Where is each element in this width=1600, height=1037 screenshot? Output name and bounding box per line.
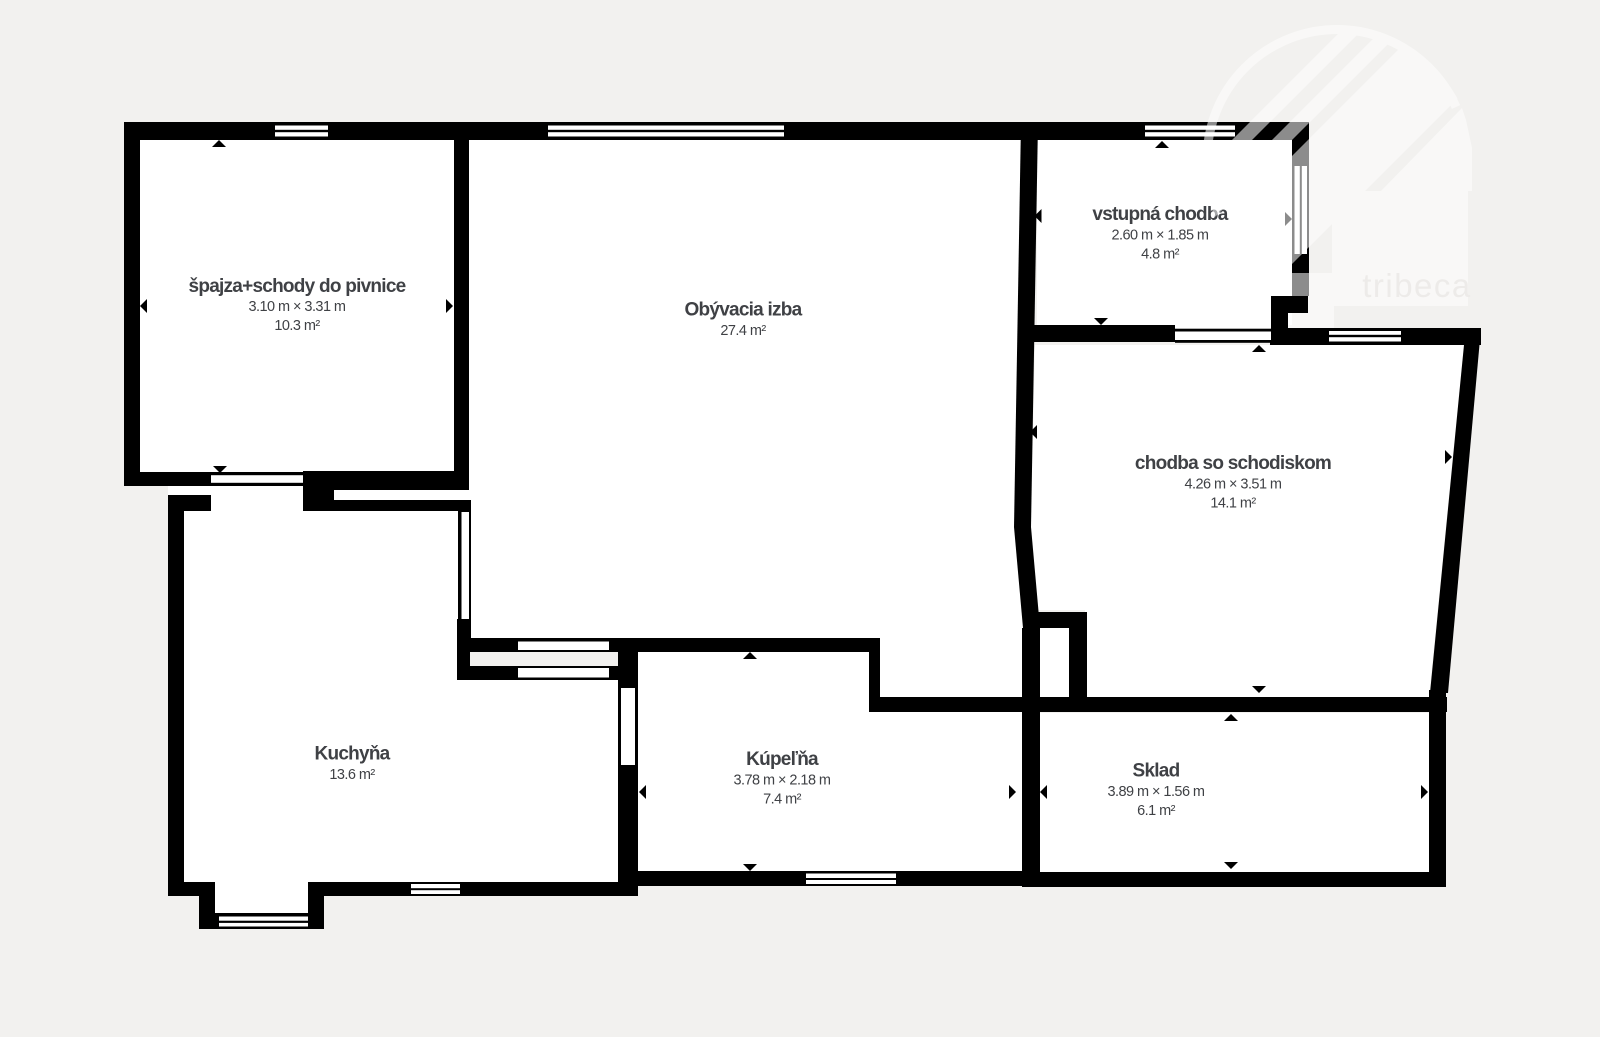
svg-text:Kuchyňa: Kuchyňa	[315, 744, 391, 765]
svg-text:Kúpeľňa: Kúpeľňa	[746, 749, 819, 770]
svg-text:tribeca: tribeca	[1362, 267, 1472, 304]
svg-text:6.1 m²: 6.1 m²	[1137, 803, 1176, 819]
svg-text:Sklad: Sklad	[1133, 761, 1180, 782]
svg-text:4.8 m²: 4.8 m²	[1141, 247, 1180, 263]
svg-text:Obývacia izba: Obývacia izba	[685, 300, 803, 321]
svg-text:27.4 m²: 27.4 m²	[720, 323, 766, 339]
svg-text:špajza+schody do pivnice: špajza+schody do pivnice	[189, 276, 406, 297]
svg-text:vstupná chodba: vstupná chodba	[1092, 204, 1228, 225]
svg-text:3.10 m × 3.31 m: 3.10 m × 3.31 m	[249, 299, 346, 315]
svg-text:2.60 m × 1.85 m: 2.60 m × 1.85 m	[1112, 227, 1209, 243]
svg-text:14.1 m²: 14.1 m²	[1210, 496, 1256, 512]
svg-text:chodba so schodiskom: chodba so schodiskom	[1135, 453, 1331, 474]
svg-text:4.26 m × 3.51 m: 4.26 m × 3.51 m	[1185, 476, 1282, 492]
svg-text:7.4 m²: 7.4 m²	[763, 792, 802, 808]
svg-text:13.6 m²: 13.6 m²	[329, 767, 375, 783]
svg-text:3.78 m × 2.18 m: 3.78 m × 2.18 m	[734, 772, 831, 788]
svg-text:10.3 m²: 10.3 m²	[274, 318, 320, 334]
svg-text:3.89 m × 1.56 m: 3.89 m × 1.56 m	[1108, 784, 1205, 800]
